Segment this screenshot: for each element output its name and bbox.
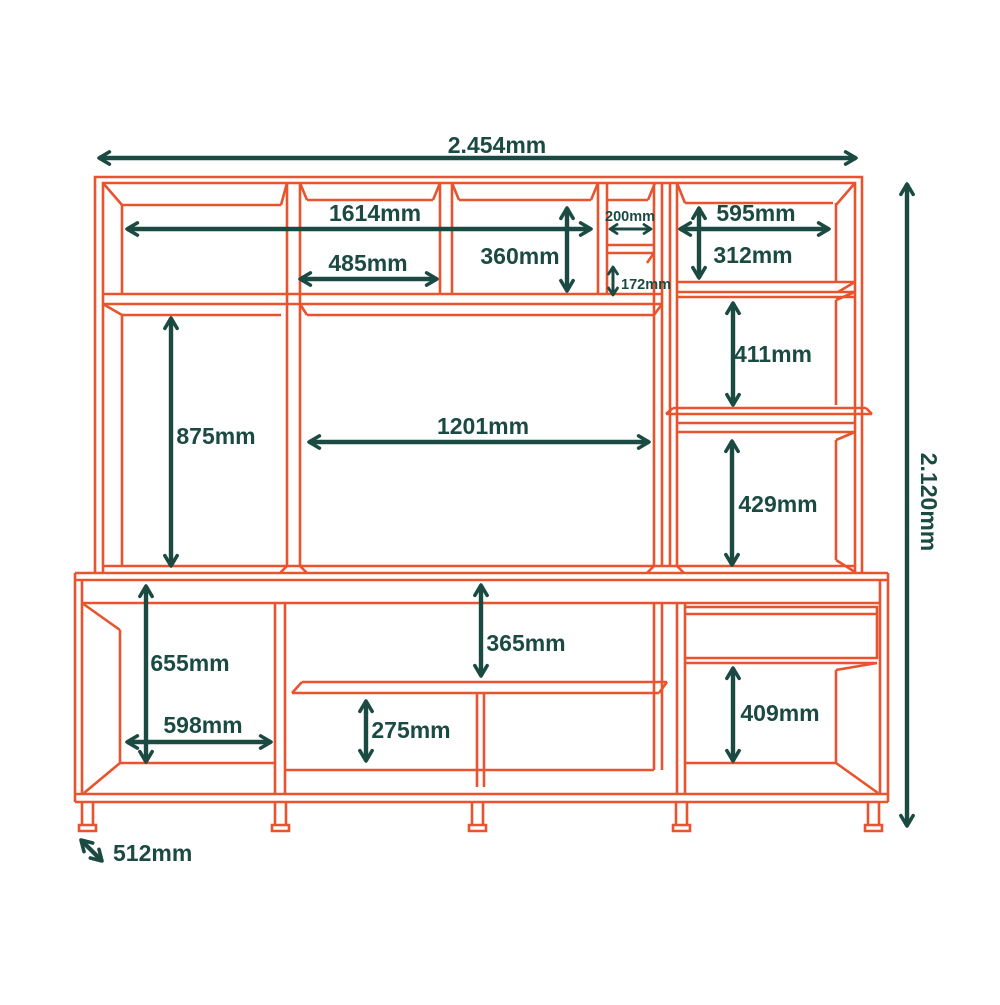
- label-429: 429mm: [738, 491, 817, 517]
- label-172: 172mm: [621, 277, 671, 293]
- leg-1: [79, 802, 96, 831]
- label-depth-512: 512mm: [113, 840, 192, 866]
- leg-4: [673, 802, 690, 831]
- label-485: 485mm: [328, 250, 407, 276]
- dimension-labels: 2.454mm 2.120mm 1614mm 485mm 360mm 200mm…: [113, 132, 942, 866]
- leg-2: [272, 802, 289, 831]
- label-1614: 1614mm: [329, 200, 421, 226]
- leg-3: [469, 802, 486, 831]
- top-divider-2: [440, 183, 452, 294]
- label-365: 365mm: [486, 630, 565, 656]
- partition-middle: [654, 183, 677, 566]
- label-655: 655mm: [150, 650, 229, 676]
- drawer-front: [685, 607, 877, 663]
- cabinet-bottom-band: [75, 794, 888, 802]
- dim-arrow-depth-512: [81, 840, 102, 861]
- label-595: 595mm: [716, 200, 795, 226]
- top-row-shelf-left: [103, 294, 662, 304]
- niche-left-wall: [598, 183, 607, 294]
- label-360: 360mm: [480, 243, 559, 269]
- label-409: 409mm: [740, 700, 819, 726]
- label-411: 411mm: [734, 341, 812, 367]
- top-left-compartment: [122, 183, 287, 294]
- leg-5: [865, 802, 882, 831]
- label-200: 200mm: [605, 209, 655, 225]
- label-overall-width: 2.454mm: [448, 132, 546, 158]
- base-partition-right: [654, 603, 685, 794]
- top-row-shelf-right: [677, 282, 855, 292]
- top-compartment-485: [300, 183, 440, 200]
- base-center-compartment: [285, 682, 667, 787]
- tv-opening-top: [300, 304, 662, 315]
- top-compartment-360: [452, 183, 598, 200]
- furniture-dimension-diagram: 2.454mm 2.120mm 1614mm 485mm 360mm 200mm…: [0, 0, 1000, 1000]
- wall-unit-technical-drawing: 2.454mm 2.120mm 1614mm 485mm 360mm 200mm…: [0, 0, 1000, 1000]
- label-875: 875mm: [176, 423, 255, 449]
- label-1201: 1201mm: [437, 413, 529, 439]
- label-312: 312mm: [713, 242, 792, 268]
- partition-left: [287, 183, 300, 566]
- base-partition-left: [275, 603, 285, 794]
- base-left-compartment: [82, 603, 275, 793]
- label-598: 598mm: [163, 712, 242, 738]
- label-275: 275mm: [371, 717, 450, 743]
- base-right-compartment: [685, 663, 878, 793]
- label-overall-height: 2.120mm: [916, 453, 942, 551]
- right-protruding-shelf: [666, 408, 872, 414]
